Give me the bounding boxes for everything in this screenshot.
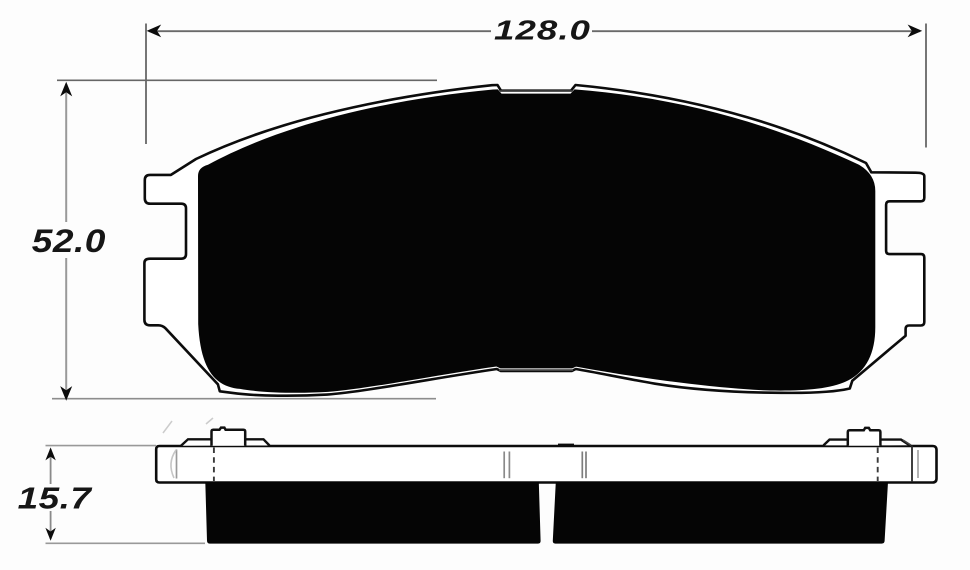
svg-text:52.0: 52.0 <box>32 224 106 259</box>
svg-text:15.7: 15.7 <box>18 481 93 516</box>
svg-text:128.0: 128.0 <box>494 14 591 46</box>
